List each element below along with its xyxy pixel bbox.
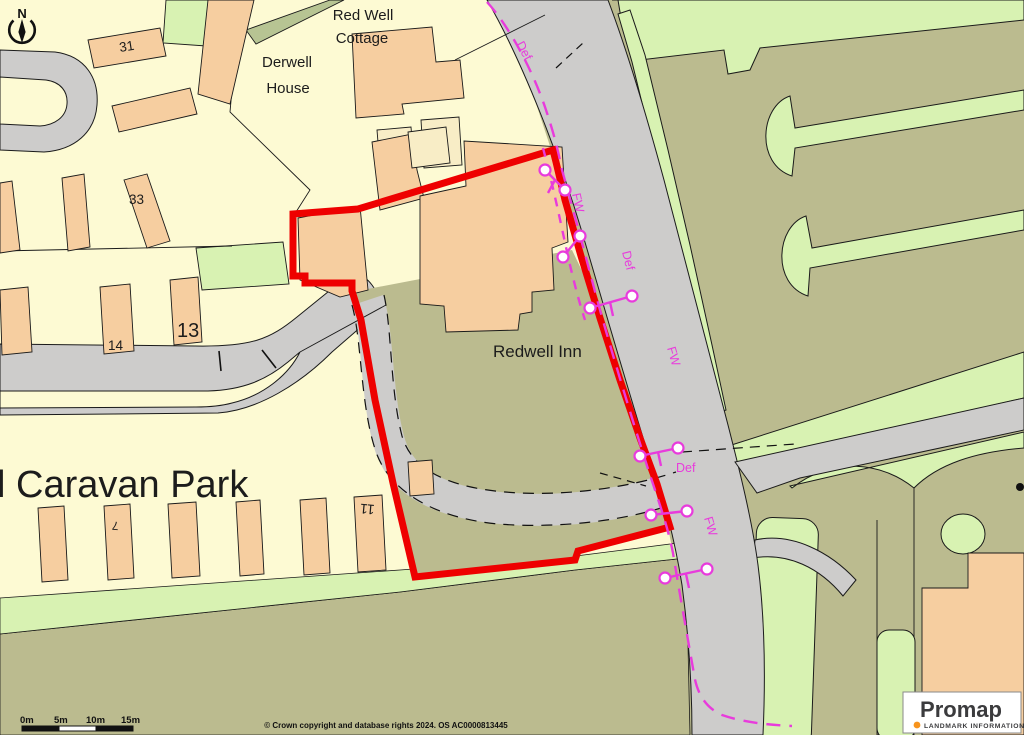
label-33: 33 [129,192,144,207]
compass-north-label: N [17,6,26,21]
scale-label-15: 15m [121,715,140,726]
scale-label-0: 0m [20,715,34,726]
label-red-well-cottage-2: Cottage [336,30,389,47]
map-canvas[interactable]: Def FW Def FW Def FW Red Well Cottage De… [0,0,1024,735]
os-map: Def FW Def FW Def FW Red Well Cottage De… [0,0,1024,735]
promap-brand: Promap [920,697,1002,722]
label-11: 11 [359,501,375,518]
label-derwell-house-1: Derwell [262,54,312,71]
label-caravan-park: l Caravan Park [0,464,249,506]
boundary-label-def-junction: Def [676,461,696,475]
promap-bullet-icon [914,722,921,729]
label-derwell-house-2: House [266,80,309,97]
scale-label-10: 10m [86,715,105,726]
copyright-text: © Crown copyright and database rights 20… [264,721,508,730]
label-redwell-inn: Redwell Inn [493,342,582,361]
promap-tagline: LANDMARK INFORMATION [924,723,1024,730]
label-red-well-cottage-1: Red Well [333,7,394,24]
promap-logo: Promap LANDMARK INFORMATION [903,692,1024,733]
label-13: 13 [177,320,199,342]
label-14: 14 [108,338,124,353]
scale-label-5: 5m [54,715,68,726]
label-31: 31 [118,38,135,55]
loop-road [0,50,97,152]
